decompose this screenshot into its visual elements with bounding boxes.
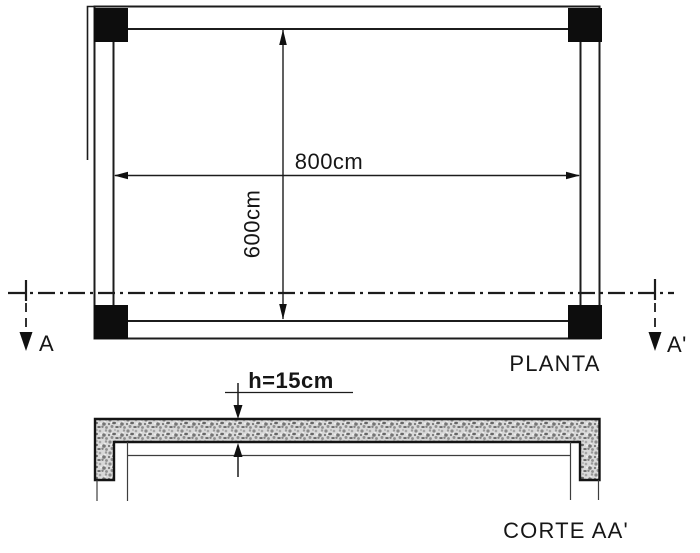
arrow-right-icon — [566, 172, 580, 179]
engineering-drawing-canvas: 800cm 600cm PLANTA A A' — [0, 0, 700, 553]
arrow-up-icon — [279, 30, 287, 46]
dimension-600cm-label: 600cm — [240, 190, 265, 259]
technical-drawing-svg: 800cm 600cm PLANTA A A' — [0, 0, 700, 553]
dimension-600cm: 600cm — [240, 30, 287, 320]
column-top-right — [568, 8, 602, 42]
dimension-800cm: 800cm — [114, 149, 580, 179]
thickness-arrow-up-icon — [234, 443, 243, 457]
arrow-down-icon — [279, 304, 287, 320]
slab-edge-top-left-line — [88, 7, 95, 161]
cut-label-a-prime: A' — [667, 332, 687, 357]
dimension-800cm-label: 800cm — [295, 149, 364, 174]
cut-arrow-right-icon — [649, 332, 662, 351]
section-view: h=15cm CORTE AA' — [95, 368, 629, 543]
cut-arrow-left-icon — [20, 332, 33, 351]
slab-cross-section — [95, 419, 600, 480]
plan-title: PLANTA — [509, 351, 600, 376]
plan-view: 800cm 600cm PLANTA — [88, 7, 603, 377]
column-top-left — [94, 8, 128, 42]
cut-label-a: A — [39, 331, 54, 356]
thickness-arrow-down-icon — [234, 405, 243, 419]
column-bottom-right — [568, 305, 602, 339]
arrow-left-icon — [114, 172, 128, 179]
column-bottom-left — [94, 305, 128, 339]
section-title: CORTE AA' — [503, 518, 629, 543]
dimension-h15cm-label: h=15cm — [248, 368, 334, 393]
